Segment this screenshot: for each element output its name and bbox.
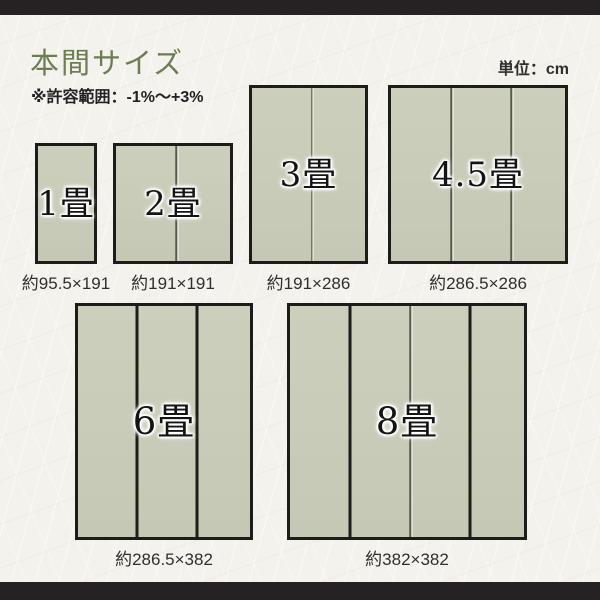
mat-seam-line [195, 306, 198, 537]
tatami-size-chart: 本間サイズ ※許容範囲：-1%〜+3% 単位：cm 1畳 約95.5×191 2… [0, 0, 600, 600]
tatami-mat-8jo: 8畳 [287, 303, 527, 540]
mat-size-label: 4.5畳 [432, 158, 524, 192]
mat-dimensions-label: 約286.5×286 [429, 269, 527, 294]
tatami-mat-1jo: 1畳 [35, 143, 97, 264]
tatami-mat-6jo: 6畳 [75, 303, 253, 540]
unit-label: 単位：cm [498, 55, 569, 79]
mat-seam-line [349, 306, 352, 537]
tolerance-note: ※許容範囲：-1%〜+3% [31, 83, 203, 107]
mat-size-label: 3畳 [280, 158, 338, 192]
top-frame-bar [0, 0, 600, 15]
mat-size-label: 1畳 [37, 187, 95, 221]
tatami-mat-2jo: 2畳 [113, 143, 233, 264]
mat-dimensions-label: 約95.5×191 [22, 269, 110, 294]
mat-dimensions-label: 約286.5×382 [115, 545, 213, 570]
mat-seam-line [469, 306, 472, 537]
mat-dimensions-label: 約191×191 [131, 269, 215, 294]
mat-dimensions-label: 約191×286 [267, 269, 351, 294]
bottom-frame-bar [0, 582, 600, 600]
tatami-mat-3jo: 3畳 [249, 85, 368, 264]
tatami-mat-4-5jo: 4.5畳 [388, 85, 568, 264]
mat-size-label: 8畳 [376, 403, 439, 440]
mat-dimensions-label: 約382×382 [365, 545, 449, 570]
mat-size-label: 6畳 [133, 403, 196, 440]
mat-size-label: 2畳 [144, 187, 202, 221]
page-title: 本間サイズ [30, 40, 184, 82]
